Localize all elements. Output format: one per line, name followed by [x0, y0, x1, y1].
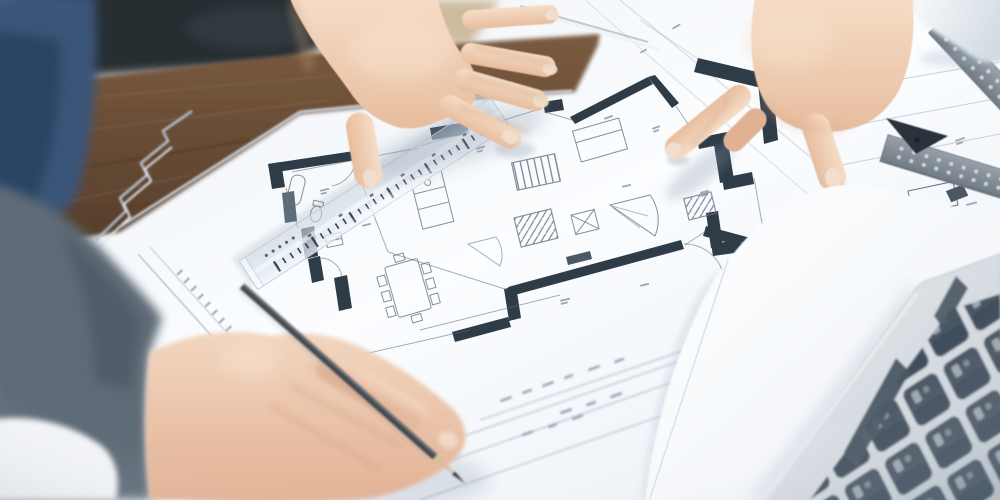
photo-canvas: wooden desk edge stacked blueprint sheet…: [0, 0, 1000, 500]
lighting-vignette: [0, 0, 1000, 500]
photo-scene: wooden desk edge stacked blueprint sheet…: [0, 0, 1000, 500]
